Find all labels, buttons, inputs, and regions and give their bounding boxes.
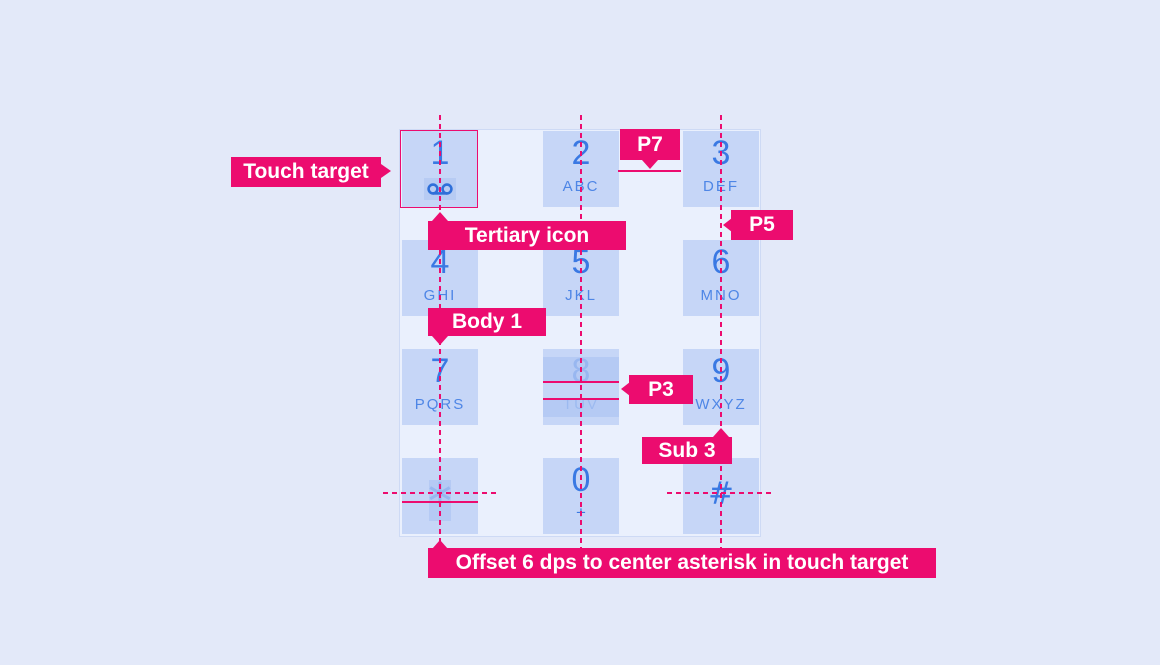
p3-measure-line-bottom [543, 398, 619, 400]
dialer-spec-canvas: 1 2 ABC 3 DEF 4 GHI 5 JKL 6 MNO 7 PQRS 8 [0, 0, 1160, 665]
label-touch-target-pointer [381, 164, 391, 178]
keyline-asterisk-center [383, 492, 497, 494]
p7-measure-line [618, 170, 681, 172]
label-touch-target: Touch target [231, 157, 381, 187]
label-offset-note: Offset 6 dps to center asterisk in touch… [428, 548, 936, 578]
label-body-1-pointer [432, 336, 448, 345]
keyline-column-3 [720, 115, 722, 548]
label-text: Touch target [243, 160, 369, 184]
label-p5: P5 [731, 210, 793, 240]
label-p7-pointer [642, 160, 658, 169]
label-p7: P7 [620, 129, 680, 160]
keyline-column-2 [580, 115, 582, 548]
label-text: Offset 6 dps to center asterisk in touch… [456, 551, 909, 575]
label-text: Sub 3 [658, 439, 715, 463]
label-p3: P3 [629, 375, 693, 404]
label-text: P5 [749, 213, 775, 237]
p3-measure-line-top [543, 381, 619, 383]
label-tertiary-icon: Tertiary icon [428, 221, 626, 250]
label-body-1: Body 1 [428, 308, 546, 336]
label-text: Tertiary icon [465, 224, 589, 248]
label-text: P3 [648, 378, 674, 402]
label-sub-3-pointer [713, 428, 729, 437]
label-sub-3: Sub 3 [642, 437, 732, 464]
label-text: P7 [637, 133, 663, 157]
keyline-pound-center [667, 492, 775, 494]
label-text: Body 1 [452, 310, 522, 334]
label-tertiary-icon-pointer [432, 212, 448, 221]
asterisk-offset-line [402, 501, 478, 503]
